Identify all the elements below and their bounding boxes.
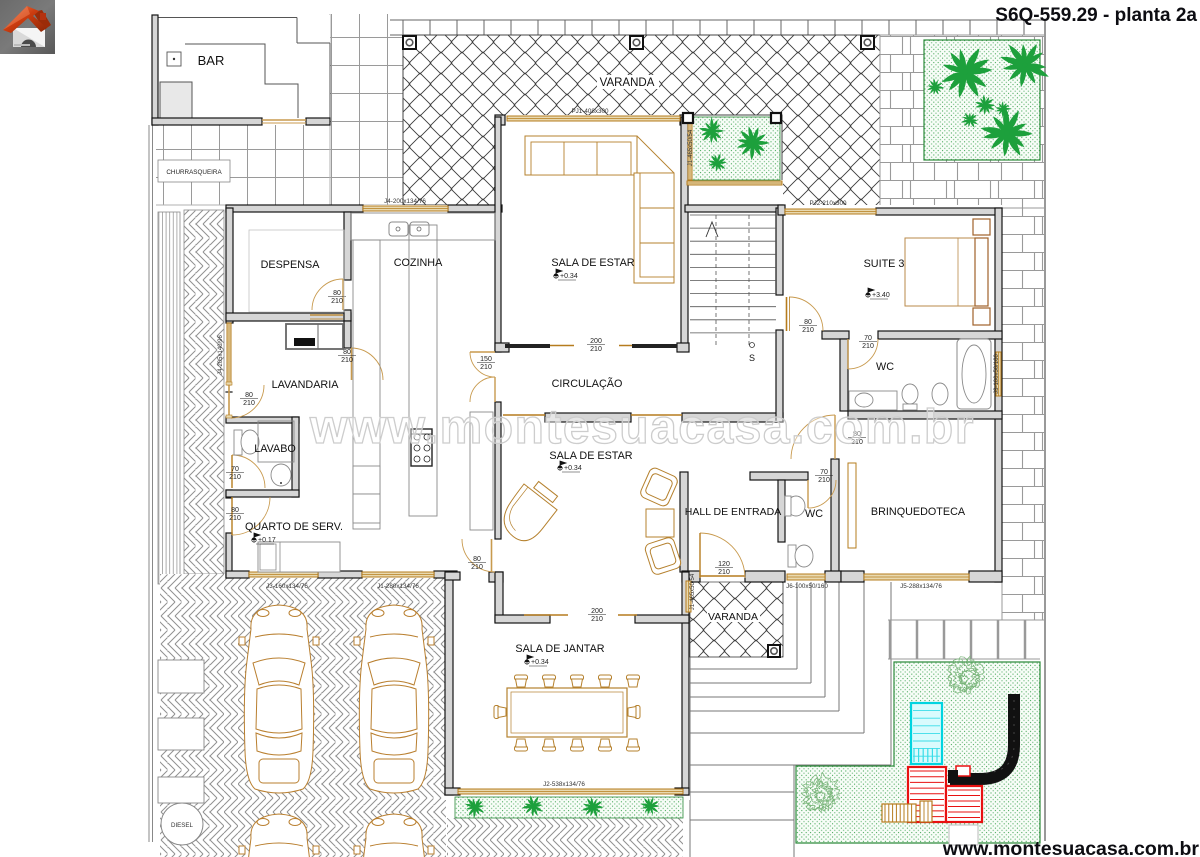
svg-text:80: 80 [245, 392, 253, 399]
svg-text:70: 70 [820, 469, 828, 476]
svg-text:QUARTO DE SERV.: QUARTO DE SERV. [245, 521, 343, 533]
svg-text:HALL DE ENTRADA: HALL DE ENTRADA [685, 506, 781, 518]
svg-text:COZINHA: COZINHA [394, 257, 443, 269]
svg-text:210: 210 [862, 343, 874, 350]
svg-text:J5-288x134/76: J5-288x134/76 [900, 583, 942, 590]
svg-text:J1-465x50/54: J1-465x50/54 [690, 573, 696, 610]
svg-text:210: 210 [229, 474, 241, 481]
svg-text:210: 210 [802, 327, 814, 334]
svg-text:210: 210 [818, 477, 830, 484]
svg-text:70: 70 [231, 466, 239, 473]
svg-text:PJ1-408x300: PJ1-408x300 [571, 108, 609, 115]
svg-text:J4-200x134/76: J4-200x134/76 [384, 198, 426, 205]
svg-text:+3.40: +3.40 [872, 292, 890, 299]
svg-text:+0.34: +0.34 [531, 659, 549, 666]
svg-text:120: 120 [718, 561, 730, 568]
svg-text:210: 210 [480, 364, 492, 371]
svg-text:70: 70 [864, 335, 872, 342]
svg-text:J6-100x50/160: J6-100x50/160 [786, 583, 828, 590]
svg-text:80: 80 [473, 556, 481, 563]
svg-text:LAVABO: LAVABO [254, 443, 296, 455]
svg-text:DESPENSA: DESPENSA [261, 259, 321, 271]
svg-text:200: 200 [590, 338, 602, 345]
svg-text:S6Q-559.29 - planta 2a: S6Q-559.29 - planta 2a [995, 5, 1197, 26]
svg-text:210: 210 [471, 564, 483, 571]
svg-text:J3-160x134/76: J3-160x134/76 [266, 583, 308, 590]
svg-text:+0.34: +0.34 [560, 273, 578, 280]
svg-text:80: 80 [231, 507, 239, 514]
svg-text:210: 210 [243, 400, 255, 407]
svg-text:210: 210 [229, 515, 241, 522]
svg-text:J3-100x50/160: J3-100x50/160 [994, 353, 1000, 393]
svg-text:S: S [749, 353, 755, 363]
svg-text:DIESEL: DIESEL [171, 822, 194, 829]
svg-text:J4-205x140/96: J4-205x140/96 [218, 334, 224, 374]
svg-text:210: 210 [341, 357, 353, 364]
svg-text:80: 80 [804, 319, 812, 326]
svg-text:VARANDA: VARANDA [708, 611, 758, 623]
svg-text:210: 210 [718, 569, 730, 576]
svg-text:LAVANDARIA: LAVANDARIA [272, 379, 340, 391]
svg-text:80: 80 [333, 290, 341, 297]
svg-text:VARANDA: VARANDA [600, 77, 655, 89]
svg-text:J1-465x50/54: J1-465x50/54 [688, 129, 694, 166]
svg-text:www.montesuacasa.com.br: www.montesuacasa.com.br [309, 401, 975, 454]
svg-text:J2-538x134/76: J2-538x134/76 [543, 781, 585, 788]
svg-text:CHURRASQUEIRA: CHURRASQUEIRA [166, 169, 222, 176]
svg-text:+0.34: +0.34 [564, 465, 582, 472]
svg-text:CIRCULAÇÃO: CIRCULAÇÃO [552, 377, 623, 390]
svg-text:WC: WC [876, 361, 894, 373]
svg-text:BRINQUEDOTECA: BRINQUEDOTECA [871, 506, 966, 518]
svg-text:150: 150 [480, 356, 492, 363]
svg-text:200: 200 [591, 608, 603, 615]
svg-text:80: 80 [343, 349, 351, 356]
svg-text:WC: WC [805, 508, 823, 520]
svg-text:SALA DE JANTAR: SALA DE JANTAR [515, 643, 604, 655]
svg-text:210: 210 [331, 298, 343, 305]
svg-text:210: 210 [591, 616, 603, 623]
svg-text:PJ2-210x300: PJ2-210x300 [809, 200, 847, 207]
svg-text:+0.17: +0.17 [258, 537, 276, 544]
svg-text:BAR: BAR [198, 53, 225, 68]
svg-text:SUITE 3: SUITE 3 [864, 258, 905, 270]
svg-text:www.montesuacasa.com.br: www.montesuacasa.com.br [942, 838, 1200, 857]
svg-text:210: 210 [590, 346, 602, 353]
svg-text:J1-280x134/76: J1-280x134/76 [377, 583, 419, 590]
svg-text:SALA DE ESTAR: SALA DE ESTAR [551, 257, 634, 269]
